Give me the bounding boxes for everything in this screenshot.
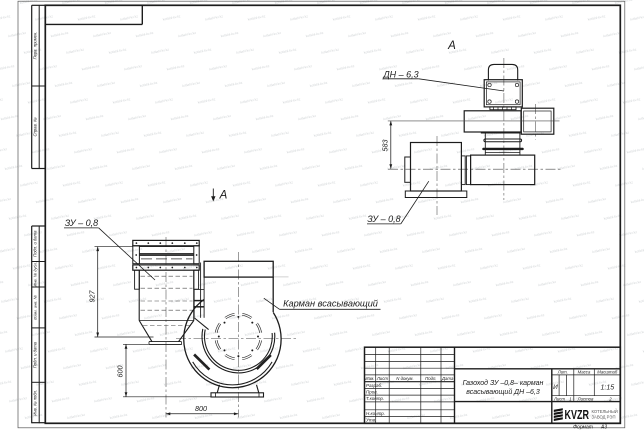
svg-text:kotlahl-kv.kz: kotlahl-kv.kz <box>425 114 444 121</box>
svg-text:kotlahl-kv.kz: kotlahl-kv.kz <box>240 97 259 104</box>
svg-text:kotlahl-kv.kz: kotlahl-kv.kz <box>487 180 506 187</box>
svg-text:Формат: Формат <box>573 424 593 430</box>
svg-text:kotlahl-kv.kz: kotlahl-kv.kz <box>135 31 154 38</box>
svg-text:kotlahl-kv.kz: kotlahl-kv.kz <box>522 263 541 270</box>
svg-text:kotlahl-kv.kz: kotlahl-kv.kz <box>244 330 263 337</box>
svg-text:kotlahl-kv.kz: kotlahl-kv.kz <box>178 213 197 220</box>
svg-text:kotlahl-kv.kz: kotlahl-kv.kz <box>638 114 644 121</box>
svg-text:kotlahl-kv.kz: kotlahl-kv.kz <box>51 396 70 403</box>
svg-text:Т.контр.: Т.контр. <box>366 396 384 401</box>
svg-text:kotlahl-kv.kz: kotlahl-kv.kz <box>534 413 553 420</box>
svg-text:kotlahl-kv.kz: kotlahl-kv.kz <box>444 0 463 5</box>
svg-text:kotlahl-kv.kz: kotlahl-kv.kz <box>352 263 371 270</box>
svg-text:kotlahl-kv.kz: kotlahl-kv.kz <box>545 197 564 204</box>
svg-text:kotlahl-kv.kz: kotlahl-kv.kz <box>193 47 212 54</box>
svg-text:Газоход ЗУ –0,8– карман: Газоход ЗУ –0,8– карман <box>463 379 544 387</box>
svg-text:kotlahl-kv.kz: kotlahl-kv.kz <box>66 230 85 237</box>
svg-text:kotlahl-kv.kz: kotlahl-kv.kz <box>81 64 100 71</box>
svg-text:kotlahl-kv.kz: kotlahl-kv.kz <box>205 14 224 21</box>
svg-text:kotlahl-kv.kz: kotlahl-kv.kz <box>375 197 394 204</box>
svg-text:kotlahl-kv.kz: kotlahl-kv.kz <box>291 379 310 386</box>
svg-text:kotlahl-kv.kz: kotlahl-kv.kz <box>309 81 328 88</box>
svg-text:kotlahl-kv.kz: kotlahl-kv.kz <box>417 14 436 21</box>
svg-text:kotlahl-kv.kz: kotlahl-kv.kz <box>189 0 208 5</box>
svg-text:583: 583 <box>381 140 390 152</box>
svg-text:kotlahl-kv.kz: kotlahl-kv.kz <box>607 263 626 270</box>
svg-text:kotlahl-kv.kz: kotlahl-kv.kz <box>147 0 166 5</box>
svg-text:kotlahl-kv.kz: kotlahl-kv.kz <box>163 197 182 204</box>
svg-text:kotlahl-kv.kz: kotlahl-kv.kz <box>317 0 336 5</box>
svg-text:kotlahl-kv.kz: kotlahl-kv.kz <box>263 213 282 220</box>
svg-text:kotlahl-kv.kz: kotlahl-kv.kz <box>329 147 348 154</box>
svg-text:kotlahl-kv.kz: kotlahl-kv.kz <box>359 0 378 5</box>
svg-text:kotlahl-kv.kz: kotlahl-kv.kz <box>468 296 487 303</box>
svg-text:kotlahl-kv.kz: kotlahl-kv.kz <box>162 14 181 21</box>
svg-text:ЗУ – 0,8: ЗУ – 0,8 <box>65 218 98 228</box>
svg-text:kotlahl-kv.kz: kotlahl-kv.kz <box>476 213 495 220</box>
svg-text:kotlahl-kv.kz: kotlahl-kv.kz <box>614 0 633 5</box>
svg-text:kotlahl-kv.kz: kotlahl-kv.kz <box>537 97 556 104</box>
svg-text:kotlahl-kv.kz: kotlahl-kv.kz <box>267 81 286 88</box>
svg-text:kotlahl-kv.kz: kotlahl-kv.kz <box>140 263 159 270</box>
svg-text:kotlahl-kv.kz: kotlahl-kv.kz <box>317 180 336 187</box>
svg-text:kotlahl-kv.kz: kotlahl-kv.kz <box>70 280 89 287</box>
svg-text:N докум.: N докум. <box>396 376 413 381</box>
svg-text:kotlahl-kv.kz: kotlahl-kv.kz <box>178 31 197 38</box>
svg-text:kotlahl-kv.kz: kotlahl-kv.kz <box>237 413 256 420</box>
svg-text:kotlahl-kv.kz: kotlahl-kv.kz <box>383 296 402 303</box>
svg-text:kotlahl-kv.kz: kotlahl-kv.kz <box>287 330 306 337</box>
svg-text:kotlahl-kv.kz: kotlahl-kv.kz <box>591 64 610 71</box>
svg-text:kotlahl-kv.kz: kotlahl-kv.kz <box>217 346 236 353</box>
svg-text:kotlahl-kv.kz: kotlahl-kv.kz <box>97 81 116 88</box>
svg-text:kotlahl-kv.kz: kotlahl-kv.kz <box>294 64 313 71</box>
svg-text:kotlahl-kv.kz: kotlahl-kv.kz <box>557 164 576 171</box>
svg-text:kotlahl-kv.kz: kotlahl-kv.kz <box>50 31 69 38</box>
svg-text:kotlahl-kv.kz: kotlahl-kv.kz <box>619 413 638 420</box>
svg-text:kotlahl-kv.kz: kotlahl-kv.kz <box>491 230 510 237</box>
svg-text:kotlahl-kv.kz: kotlahl-kv.kz <box>356 130 375 137</box>
svg-text:kotlahl-kv.kz: kotlahl-kv.kz <box>406 230 425 237</box>
svg-text:kotlahl-kv.kz: kotlahl-kv.kz <box>70 97 89 104</box>
svg-text:kotlahl-kv.kz: kotlahl-kv.kz <box>314 313 333 320</box>
svg-text:kotlahl-kv.kz: kotlahl-kv.kz <box>348 31 367 38</box>
svg-text:kotlahl-kv.kz: kotlahl-kv.kz <box>333 197 352 204</box>
svg-text:kotlahl-kv.kz: kotlahl-kv.kz <box>0 114 19 121</box>
svg-text:kotlahl-kv.kz: kotlahl-kv.kz <box>136 213 155 220</box>
svg-text:kotlahl-kv.kz: kotlahl-kv.kz <box>325 97 344 104</box>
svg-text:kotlahl-kv.kz: kotlahl-kv.kz <box>0 147 8 154</box>
svg-text:kotlahl-kv.kz: kotlahl-kv.kz <box>576 230 595 237</box>
svg-text:kotlahl-kv.kz: kotlahl-kv.kz <box>460 14 479 21</box>
svg-text:kotlahl-kv.kz: kotlahl-kv.kz <box>0 379 12 386</box>
svg-text:kotlahl-kv.kz: kotlahl-kv.kz <box>0 197 12 204</box>
svg-text:kotlahl-kv.kz: kotlahl-kv.kz <box>190 180 209 187</box>
svg-text:kotlahl-kv.kz: kotlahl-kv.kz <box>511 296 530 303</box>
svg-text:kotlahl-kv.kz: kotlahl-kv.kz <box>12 81 31 88</box>
svg-text:kotlahl-kv.kz: kotlahl-kv.kz <box>217 164 236 171</box>
svg-text:kotlahl-kv.kz: kotlahl-kv.kz <box>495 280 514 287</box>
svg-text:kotlahl-kv.kz: kotlahl-kv.kz <box>631 379 644 386</box>
svg-text:kotlahl-kv.kz: kotlahl-kv.kz <box>232 180 251 187</box>
svg-text:kotlahl-kv.kz: kotlahl-kv.kz <box>275 180 294 187</box>
svg-text:kotlahl-kv.kz: kotlahl-kv.kz <box>433 31 452 38</box>
svg-text:kotlahl-kv.kz: kotlahl-kv.kz <box>395 263 414 270</box>
svg-text:kotlahl-kv.kz: kotlahl-kv.kz <box>603 31 622 38</box>
svg-text:kotlahl-kv.kz: kotlahl-kv.kz <box>542 330 561 337</box>
svg-text:kotlahl-kv.kz: kotlahl-kv.kz <box>78 379 97 386</box>
svg-text:kotlahl-kv.kz: kotlahl-kv.kz <box>117 330 136 337</box>
svg-text:kotlahl-kv.kz: kotlahl-kv.kz <box>429 164 448 171</box>
svg-text:kotlahl-kv.kz: kotlahl-kv.kz <box>592 247 611 254</box>
svg-text:kotlahl-kv.kz: kotlahl-kv.kz <box>113 280 132 287</box>
svg-text:kotlahl-kv.kz: kotlahl-kv.kz <box>464 247 483 254</box>
svg-text:kotlahl-kv.kz: kotlahl-kv.kz <box>321 230 340 237</box>
svg-text:kotlahl-kv.kz: kotlahl-kv.kz <box>518 31 537 38</box>
svg-text:kotlahl-kv.kz: kotlahl-kv.kz <box>464 64 483 71</box>
svg-text:kotlahl-kv.kz: kotlahl-kv.kz <box>0 247 16 254</box>
svg-text:kotlahl-kv.kz: kotlahl-kv.kz <box>596 296 615 303</box>
svg-text:kotlahl-kv.kz: kotlahl-kv.kz <box>492 413 511 420</box>
svg-text:kotlahl-kv.kz: kotlahl-kv.kz <box>62 180 81 187</box>
svg-text:kotlahl-kv.kz: kotlahl-kv.kz <box>0 280 4 287</box>
svg-text:kotlahl-kv.kz: kotlahl-kv.kz <box>441 313 460 320</box>
svg-text:kotlahl-kv.kz: kotlahl-kv.kz <box>344 164 363 171</box>
svg-text:kotlahl-kv.kz: kotlahl-kv.kz <box>259 164 278 171</box>
svg-text:kotlahl-kv.kz: kotlahl-kv.kz <box>588 197 607 204</box>
svg-text:kotlahl-kv.kz: kotlahl-kv.kz <box>201 147 220 154</box>
svg-text:Подп. и дата: Подп. и дата <box>33 341 38 368</box>
svg-text:kotlahl-kv.kz: kotlahl-kv.kz <box>379 247 398 254</box>
svg-text:kotlahl-kv.kz: kotlahl-kv.kz <box>54 81 73 88</box>
svg-text:kotlahl-kv.kz: kotlahl-kv.kz <box>565 263 584 270</box>
svg-text:kotlahl-kv.kz: kotlahl-kv.kz <box>0 330 8 337</box>
svg-text:kotlahl-kv.kz: kotlahl-kv.kz <box>503 197 522 204</box>
svg-text:kotlahl-kv.kz: kotlahl-kv.kz <box>336 64 355 71</box>
svg-text:kotlahl-kv.kz: kotlahl-kv.kz <box>290 14 309 21</box>
svg-text:kotlahl-kv.kz: kotlahl-kv.kz <box>31 147 50 154</box>
svg-text:kotlahl-kv.kz: kotlahl-kv.kz <box>252 247 271 254</box>
svg-text:kotlahl-kv.kz: kotlahl-kv.kz <box>240 280 259 287</box>
svg-text:kotlahl-kv.kz: kotlahl-kv.kz <box>522 81 541 88</box>
svg-text:kotlahl-kv.kz: kotlahl-kv.kz <box>375 14 394 21</box>
svg-text:kotlahl-kv.kz: kotlahl-kv.kz <box>120 14 139 21</box>
svg-text:Справ. №: Справ. № <box>33 117 38 136</box>
svg-text:kotlahl-kv.kz: kotlahl-kv.kz <box>120 197 139 204</box>
svg-text:Изм.: Изм. <box>365 376 374 381</box>
svg-text:kotlahl-kv.kz: kotlahl-kv.kz <box>456 147 475 154</box>
svg-text:kotlahl-kv.kz: kotlahl-kv.kz <box>236 47 255 54</box>
svg-text:kotlahl-kv.kz: kotlahl-kv.kz <box>132 346 151 353</box>
svg-text:600: 600 <box>116 366 125 378</box>
svg-text:kotlahl-kv.kz: kotlahl-kv.kz <box>101 313 120 320</box>
svg-text:kotlahl-kv.kz: kotlahl-kv.kz <box>74 330 93 337</box>
svg-text:kotlahl-kv.kz: kotlahl-kv.kz <box>206 379 225 386</box>
svg-text:kotlahl-kv.kz: kotlahl-kv.kz <box>499 330 518 337</box>
svg-text:kotlahl-kv.kz: kotlahl-kv.kz <box>279 413 298 420</box>
svg-text:kotlahl-kv.kz: kotlahl-kv.kz <box>148 363 167 370</box>
svg-text:kotlahl-kv.kz: kotlahl-kv.kz <box>526 313 545 320</box>
svg-text:kotlahl-kv.kz: kotlahl-kv.kz <box>453 280 472 287</box>
svg-text:kotlahl-kv.kz: kotlahl-kv.kz <box>282 97 301 104</box>
svg-text:kotlahl-kv.kz: kotlahl-kv.kz <box>580 97 599 104</box>
svg-text:kotlahl-kv.kz: kotlahl-kv.kz <box>58 130 77 137</box>
svg-text:kotlahl-kv.kz: kotlahl-kv.kz <box>561 213 580 220</box>
svg-text:ДН – 6,3: ДН – 6,3 <box>382 69 418 79</box>
svg-text:kotlahl-kv.kz: kotlahl-kv.kz <box>321 47 340 54</box>
svg-text:kotlahl-kv.kz: kotlahl-kv.kz <box>414 330 433 337</box>
svg-text:kotlahl-kv.kz: kotlahl-kv.kz <box>256 296 275 303</box>
svg-text:1:15: 1:15 <box>600 385 614 392</box>
svg-text:kotlahl-kv.kz: kotlahl-kv.kz <box>97 263 116 270</box>
svg-text:kotlahl-kv.kz: kotlahl-kv.kz <box>255 114 274 121</box>
svg-text:kotlahl-kv.kz: kotlahl-kv.kz <box>94 396 113 403</box>
svg-text:kotlahl-kv.kz: kotlahl-kv.kz <box>564 81 583 88</box>
svg-text:kotlahl-kv.kz: kotlahl-kv.kz <box>174 164 193 171</box>
svg-text:kotlahl-kv.kz: kotlahl-kv.kz <box>421 64 440 71</box>
svg-text:kotlahl-kv.kz: kotlahl-kv.kz <box>619 230 638 237</box>
svg-text:kotlahl-kv.kz: kotlahl-kv.kz <box>553 114 572 121</box>
svg-text:kotlahl-kv.kz: kotlahl-kv.kz <box>584 330 603 337</box>
svg-text:kotlahl-kv.kz: kotlahl-kv.kz <box>116 147 135 154</box>
svg-text:kotlahl-kv.kz: kotlahl-kv.kz <box>507 247 526 254</box>
svg-text:kotlahl-kv.kz: kotlahl-kv.kz <box>615 180 634 187</box>
svg-text:kotlahl-kv.kz: kotlahl-kv.kz <box>78 197 97 204</box>
svg-text:kotlahl-kv.kz: kotlahl-kv.kz <box>426 296 445 303</box>
svg-text:kotlahl-kv.kz: kotlahl-kv.kz <box>391 396 410 403</box>
svg-text:kotlahl-kv.kz: kotlahl-kv.kz <box>167 247 186 254</box>
svg-text:kotlahl-kv.kz: kotlahl-kv.kz <box>495 97 514 104</box>
svg-text:И: И <box>553 384 558 391</box>
svg-text:kotlahl-kv.kz: kotlahl-kv.kz <box>422 247 441 254</box>
svg-text:kotlahl-kv.kz: kotlahl-kv.kz <box>363 47 382 54</box>
svg-text:927: 927 <box>87 290 96 303</box>
svg-text:kotlahl-kv.kz: kotlahl-kv.kz <box>491 47 510 54</box>
svg-text:kotlahl-kv.kz: kotlahl-kv.kz <box>302 346 321 353</box>
svg-text:Подп. и дата: Подп. и дата <box>33 230 38 257</box>
svg-text:kotlahl-kv.kz: kotlahl-kv.kz <box>128 296 147 303</box>
svg-text:kotlahl-kv.kz: kotlahl-kv.kz <box>568 130 587 137</box>
svg-text:kotlahl-kv.kz: kotlahl-kv.kz <box>541 147 560 154</box>
svg-text:kotlahl-kv.kz: kotlahl-kv.kz <box>104 0 123 5</box>
svg-text:kotlahl-kv.kz: kotlahl-kv.kz <box>560 31 579 38</box>
svg-text:kotlahl-kv.kz: kotlahl-kv.kz <box>298 114 317 121</box>
svg-text:Масса: Масса <box>578 370 591 375</box>
svg-text:kotlahl-kv.kz: kotlahl-kv.kz <box>352 81 371 88</box>
svg-text:Взам. инв. №: Взам. инв. № <box>33 294 38 319</box>
svg-text:kotlahl-kv.kz: kotlahl-kv.kz <box>618 47 637 54</box>
svg-text:kotlahl-kv.kz: kotlahl-kv.kz <box>518 213 537 220</box>
svg-text:kotlahl-kv.kz: kotlahl-kv.kz <box>449 230 468 237</box>
svg-text:kotlahl-kv.kz: kotlahl-kv.kz <box>19 0 38 5</box>
svg-text:kotlahl-kv.kz: kotlahl-kv.kz <box>603 213 622 220</box>
svg-text:kotlahl-kv.kz: kotlahl-kv.kz <box>274 0 293 5</box>
svg-text:kotlahl-kv.kz: kotlahl-kv.kz <box>213 114 232 121</box>
svg-text:kotlahl-kv.kz: kotlahl-kv.kz <box>267 263 286 270</box>
svg-text:kotlahl-kv.kz: kotlahl-kv.kz <box>329 330 348 337</box>
svg-text:kotlahl-kv.kz: kotlahl-kv.kz <box>155 97 174 104</box>
svg-text:kotlahl-kv.kz: kotlahl-kv.kz <box>279 230 298 237</box>
svg-text:Лист: Лист <box>376 376 388 381</box>
svg-text:kotlahl-kv.kz: kotlahl-kv.kz <box>90 346 109 353</box>
svg-text:kotlahl-kv.kz: kotlahl-kv.kz <box>534 230 553 237</box>
svg-text:kotlahl-kv.kz: kotlahl-kv.kz <box>572 0 591 5</box>
svg-text:kotlahl-kv.kz: kotlahl-kv.kz <box>264 396 283 403</box>
svg-text:kotlahl-kv.kz: kotlahl-kv.kz <box>67 413 86 420</box>
svg-text:kotlahl-kv.kz: kotlahl-kv.kz <box>27 97 46 104</box>
svg-text:kotlahl-kv.kz: kotlahl-kv.kz <box>572 180 591 187</box>
svg-text:kotlahl-kv.kz: kotlahl-kv.kz <box>124 64 143 71</box>
svg-text:kotlahl-kv.kz: kotlahl-kv.kz <box>530 180 549 187</box>
svg-text:kotlahl-kv.kz: kotlahl-kv.kz <box>445 180 464 187</box>
svg-text:kotlahl-kv.kz: kotlahl-kv.kz <box>228 130 247 137</box>
svg-text:kotlahl-kv.kz: kotlahl-kv.kz <box>39 247 58 254</box>
svg-text:kotlahl-kv.kz: kotlahl-kv.kz <box>584 147 603 154</box>
svg-text:Утв.: Утв. <box>366 418 376 423</box>
svg-text:kotlahl-kv.kz: kotlahl-kv.kz <box>159 330 178 337</box>
svg-text:kotlahl-kv.kz: kotlahl-kv.kz <box>441 130 460 137</box>
svg-text:kotlahl-kv.kz: kotlahl-kv.kz <box>112 97 131 104</box>
svg-text:Разраб.: Разраб. <box>366 383 382 388</box>
svg-text:kotlahl-kv.kz: kotlahl-kv.kz <box>186 130 205 137</box>
svg-text:kotlahl-kv.kz: kotlahl-kv.kz <box>47 164 66 171</box>
svg-text:КОТЕЛЬНЫЙ: КОТЕЛЬНЫЙ <box>592 409 618 414</box>
svg-text:kotlahl-kv.kz: kotlahl-kv.kz <box>8 31 27 38</box>
svg-text:kotlahl-kv.kz: kotlahl-kv.kz <box>484 313 503 320</box>
svg-text:Пров.: Пров. <box>366 390 378 395</box>
svg-text:kotlahl-kv.kz: kotlahl-kv.kz <box>263 31 282 38</box>
svg-text:kotlahl-kv.kz: kotlahl-kv.kz <box>322 413 341 420</box>
svg-text:kotlahl-kv.kz: kotlahl-kv.kz <box>340 114 359 121</box>
svg-text:kotlahl-kv.kz: kotlahl-kv.kz <box>220 31 239 38</box>
svg-text:Лист: Лист <box>553 396 565 401</box>
svg-text:kotlahl-kv.kz: kotlahl-kv.kz <box>0 14 11 21</box>
svg-text:kotlahl-kv.kz: kotlahl-kv.kz <box>502 14 521 21</box>
svg-text:kotlahl-kv.kz: kotlahl-kv.kz <box>627 330 644 337</box>
svg-text:kotlahl-kv.kz: kotlahl-kv.kz <box>1 296 20 303</box>
svg-text:kotlahl-kv.kz: kotlahl-kv.kz <box>360 180 379 187</box>
svg-text:kotlahl-kv.kz: kotlahl-kv.kz <box>368 280 387 287</box>
svg-text:kotlahl-kv.kz: kotlahl-kv.kz <box>638 296 644 303</box>
svg-text:kotlahl-kv.kz: kotlahl-kv.kz <box>55 263 74 270</box>
svg-text:kotlahl-kv.kz: kotlahl-kv.kz <box>109 230 128 237</box>
svg-text:kotlahl-kv.kz: kotlahl-kv.kz <box>109 413 128 420</box>
svg-text:kotlahl-kv.kz: kotlahl-kv.kz <box>4 164 23 171</box>
svg-text:kotlahl-kv.kz: kotlahl-kv.kz <box>626 147 644 154</box>
svg-text:kotlahl-kv.kz: kotlahl-kv.kz <box>286 147 305 154</box>
svg-text:kotlahl-kv.kz: kotlahl-kv.kz <box>634 64 644 71</box>
svg-text:kotlahl-kv.kz: kotlahl-kv.kz <box>101 130 120 137</box>
svg-text:kotlahl-kv.kz: kotlahl-kv.kz <box>302 164 321 171</box>
svg-text:kotlahl-kv.kz: kotlahl-kv.kz <box>634 247 644 254</box>
svg-text:kotlahl-kv.kz: kotlahl-kv.kz <box>414 147 433 154</box>
svg-text:kotlahl-kv.kz: kotlahl-kv.kz <box>62 0 81 5</box>
svg-text:kotlahl-kv.kz: kotlahl-kv.kz <box>399 313 418 320</box>
svg-text:kotlahl-kv.kz: kotlahl-kv.kz <box>306 213 325 220</box>
svg-text:kotlahl-kv.kz: kotlahl-kv.kz <box>364 230 383 237</box>
svg-text:kotlahl-kv.kz: kotlahl-kv.kz <box>538 280 557 287</box>
svg-text:kotlahl-kv.kz: kotlahl-kv.kz <box>12 263 31 270</box>
svg-text:Инв. № дубл.: Инв. № дубл. <box>33 262 38 287</box>
svg-text:kotlahl-kv.kz: kotlahl-kv.kz <box>209 64 228 71</box>
svg-text:kotlahl-kv.kz: kotlahl-kv.kz <box>290 197 309 204</box>
svg-text:kotlahl-kv.kz: kotlahl-kv.kz <box>132 164 151 171</box>
svg-text:kotlahl-kv.kz: kotlahl-kv.kz <box>209 247 228 254</box>
svg-text:А: А <box>219 190 228 202</box>
svg-text:kotlahl-kv.kz: kotlahl-kv.kz <box>171 296 190 303</box>
svg-text:Перв. примен.: Перв. примен. <box>33 32 38 60</box>
svg-text:kotlahl-kv.kz: kotlahl-kv.kz <box>348 213 367 220</box>
svg-text:kotlahl-kv.kz: kotlahl-kv.kz <box>143 130 162 137</box>
svg-text:kotlahl-kv.kz: kotlahl-kv.kz <box>553 296 572 303</box>
svg-text:ЗУ – 0,8: ЗУ – 0,8 <box>367 214 400 224</box>
svg-text:kotlahl-kv.kz: kotlahl-kv.kz <box>372 330 391 337</box>
svg-text:kotlahl-kv.kz: kotlahl-kv.kz <box>151 47 170 54</box>
svg-text:kotlahl-kv.kz: kotlahl-kv.kz <box>457 330 476 337</box>
svg-text:kotlahl-kv.kz: kotlahl-kv.kz <box>306 396 325 403</box>
svg-text:kotlahl-kv.kz: kotlahl-kv.kz <box>468 114 487 121</box>
svg-text:kotlahl-kv.kz: kotlahl-kv.kz <box>383 114 402 121</box>
svg-text:kotlahl-kv.kz: kotlahl-kv.kz <box>394 81 413 88</box>
svg-text:kotlahl-kv.kz: kotlahl-kv.kz <box>533 47 552 54</box>
svg-text:kotlahl-kv.kz: kotlahl-kv.kz <box>66 47 85 54</box>
svg-text:kotlahl-kv.kz: kotlahl-kv.kz <box>398 130 417 137</box>
svg-text:kotlahl-kv.kz: kotlahl-kv.kz <box>305 31 324 38</box>
svg-text:Дата: Дата <box>441 376 454 381</box>
svg-text:kotlahl-kv.kz: kotlahl-kv.kz <box>271 130 290 137</box>
svg-text:всасывающий ДН –6,3: всасывающий ДН –6,3 <box>466 388 540 396</box>
svg-text:kotlahl-kv.kz: kotlahl-kv.kz <box>514 164 533 171</box>
svg-text:kotlahl-kv.kz: kotlahl-kv.kz <box>275 363 294 370</box>
svg-text:kotlahl-kv.kz: kotlahl-kv.kz <box>247 14 266 21</box>
svg-text:kotlahl-kv.kz: kotlahl-kv.kz <box>356 313 375 320</box>
svg-text:kotlahl-kv.kz: kotlahl-kv.kz <box>367 97 386 104</box>
svg-text:kotlahl-kv.kz: kotlahl-kv.kz <box>20 180 39 187</box>
svg-text:kotlahl-kv.kz: kotlahl-kv.kz <box>452 97 471 104</box>
svg-text:kotlahl-kv.kz: kotlahl-kv.kz <box>244 147 263 154</box>
svg-text:kotlahl-kv.kz: kotlahl-kv.kz <box>166 64 185 71</box>
svg-text:Инв. № подл.: Инв. № подл. <box>33 390 38 416</box>
svg-text:kotlahl-kv.kz: kotlahl-kv.kz <box>108 47 127 54</box>
svg-text:kotlahl-kv.kz: kotlahl-kv.kz <box>549 247 568 254</box>
svg-text:kotlahl-kv.kz: kotlahl-kv.kz <box>410 97 429 104</box>
svg-text:kotlahl-kv.kz: kotlahl-kv.kz <box>147 180 166 187</box>
svg-text:kotlahl-kv.kz: kotlahl-kv.kz <box>333 379 352 386</box>
svg-text:kotlahl-kv.kz: kotlahl-kv.kz <box>607 81 626 88</box>
svg-text:kotlahl-kv.kz: kotlahl-kv.kz <box>182 81 201 88</box>
svg-text:kotlahl-kv.kz: kotlahl-kv.kz <box>487 0 506 5</box>
svg-text:kotlahl-kv.kz: kotlahl-kv.kz <box>345 346 364 353</box>
svg-text:kotlahl-kv.kz: kotlahl-kv.kz <box>480 263 499 270</box>
svg-text:kotlahl-kv.kz: kotlahl-kv.kz <box>622 97 641 104</box>
svg-text:Лит.: Лит. <box>557 370 568 375</box>
svg-text:kotlahl-kv.kz: kotlahl-kv.kz <box>0 413 1 420</box>
svg-text:kotlahl-kv.kz: kotlahl-kv.kz <box>332 14 351 21</box>
svg-text:kotlahl-kv.kz: kotlahl-kv.kz <box>0 64 15 71</box>
svg-text:kotlahl-kv.kz: kotlahl-kv.kz <box>59 313 78 320</box>
svg-text:800: 800 <box>195 404 207 413</box>
svg-text:kotlahl-kv.kz: kotlahl-kv.kz <box>32 330 51 337</box>
svg-text:kotlahl-kv.kz: kotlahl-kv.kz <box>251 64 270 71</box>
svg-text:kotlahl-kv.kz: kotlahl-kv.kz <box>406 47 425 54</box>
svg-text:kotlahl-kv.kz: kotlahl-kv.kz <box>121 379 140 386</box>
svg-text:kotlahl-kv.kz: kotlahl-kv.kz <box>93 31 112 38</box>
svg-text:kotlahl-kv.kz: kotlahl-kv.kz <box>630 197 644 204</box>
svg-text:kotlahl-kv.kz: kotlahl-kv.kz <box>325 280 344 287</box>
svg-text:kotlahl-kv.kz: kotlahl-kv.kz <box>313 130 332 137</box>
svg-text:kotlahl-kv.kz: kotlahl-kv.kz <box>194 230 213 237</box>
svg-text:Листов: Листов <box>577 396 594 401</box>
